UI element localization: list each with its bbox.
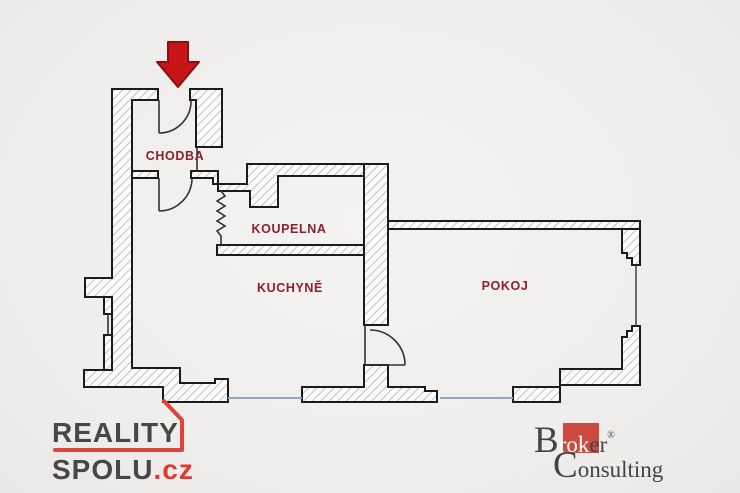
reality-spolu-logo: REALITY SPOLU.cz [52, 419, 194, 484]
entrance-arrow-icon [157, 42, 199, 87]
room-label-koupelna: KOUPELNA [252, 222, 327, 236]
broker-consulting-logo: Broker® Consulting [534, 419, 734, 479]
wall-pokoj-top [388, 221, 640, 229]
wall-niche-upper [104, 297, 112, 314]
room-label-chodba: CHODBA [146, 149, 204, 163]
wall-bathroom-top [218, 164, 370, 207]
room-label-kuchyne: KUCHYNĚ [257, 280, 323, 295]
walls [84, 89, 640, 402]
wall-chodba-bottom-left [132, 171, 158, 178]
broker-word2-rest: onsulting [578, 457, 664, 482]
floor-plan-page: CHODBA KOUPELNA KUCHYNĚ POKOJ REALITY SP… [0, 0, 740, 493]
reality-spolu-word: SPOLU [52, 454, 153, 485]
wall-entrance-block [190, 89, 222, 147]
wall-pokoj-bottom-right [513, 326, 640, 402]
reality-spolu-line2: SPOLU.cz [52, 456, 194, 484]
broker-initial-c: C [553, 445, 578, 486]
registered-trademark-icon: ® [607, 430, 615, 441]
pokoj-door-arc [370, 330, 405, 365]
broker-line2: Consulting [553, 449, 734, 487]
reality-spolu-tld: .cz [153, 454, 193, 485]
wall-bathroom-bottom [217, 245, 370, 255]
chodba-door-arc [159, 178, 192, 211]
wall-niche-lower [104, 335, 112, 370]
room-label-pokoj: POKOJ [482, 279, 529, 293]
reality-spolu-line1: REALITY [52, 419, 194, 447]
wall-bottom-middle [302, 365, 437, 402]
break-zigzag [217, 191, 225, 245]
entrance-door-arc [159, 100, 191, 133]
wall-chodba-bottom-right [191, 171, 218, 184]
wall-kitchen-pokoj-divider [364, 164, 388, 325]
wall-pokoj-right-upper [622, 229, 640, 265]
